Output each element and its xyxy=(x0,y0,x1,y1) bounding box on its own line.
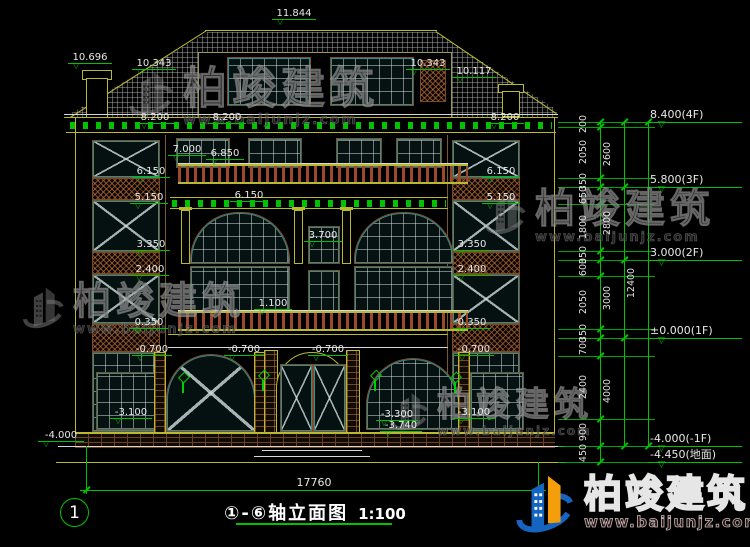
attic-window-left xyxy=(227,57,311,106)
column-2 xyxy=(294,210,303,264)
elevation-label: 3.350▽ xyxy=(132,239,170,251)
3f-cornice-top xyxy=(170,197,448,198)
basement-window-far-left xyxy=(96,372,156,430)
3f-dentil-band xyxy=(172,200,446,207)
entrance-step-1 xyxy=(262,450,362,451)
eave-line-bottom xyxy=(66,132,556,133)
3f-arched-window-right xyxy=(354,212,454,264)
wall-lamp-1 xyxy=(178,372,188,394)
chimney-left xyxy=(86,78,108,118)
dimension-value: 4000 xyxy=(603,369,613,413)
elevation-label: 6.150▽ xyxy=(482,166,520,178)
dim-extension-line xyxy=(558,260,655,261)
elevation-label: 10.343▽ xyxy=(406,58,450,70)
wall-edge-right xyxy=(554,117,555,446)
floor-elevation-flag: 3.000(2F)▽ xyxy=(650,247,742,261)
column-1 xyxy=(181,210,190,264)
elevation-label: 10.117▽ xyxy=(452,66,496,78)
dimension-chain-line xyxy=(648,122,649,446)
entrance-door-leaf-right xyxy=(313,364,346,432)
drawing-title: ①-⑥轴立面图 xyxy=(224,499,348,525)
elevation-label: -0.700▽ xyxy=(454,344,494,356)
elevation-label: 6.850▽ xyxy=(206,148,244,160)
elevation-label: 10.696▽ xyxy=(68,52,112,64)
dim-extension-line xyxy=(558,329,655,330)
dim-extension-line xyxy=(558,187,655,188)
wall-lamp-2 xyxy=(258,370,268,392)
elevation-label: -3.740▽ xyxy=(380,420,422,432)
dim-extension-line xyxy=(558,446,655,447)
brand-logo: 柏竣建筑 www.baijunjz.com xyxy=(516,468,750,538)
overall-dimension-line xyxy=(80,490,546,491)
attic-window-right xyxy=(330,57,414,106)
floor-elevation-flag: -4.450(地面)▽ xyxy=(650,449,742,463)
elevation-label: 10.343▽ xyxy=(132,58,176,70)
elevation-label: 3.700▽ xyxy=(304,230,342,242)
elevation-label: 2.400▽ xyxy=(453,264,491,276)
watermark-url: www.baijunjz.com xyxy=(535,230,715,245)
overall-width-dimension: 17760 xyxy=(264,476,364,489)
wall-lamp-3 xyxy=(370,370,380,392)
elevation-label: 11.844▽ xyxy=(272,8,316,20)
entrance-door-leaf-left xyxy=(280,364,313,432)
elevation-label: 5.150▽ xyxy=(130,192,168,204)
brand-logo-icon xyxy=(516,468,578,538)
brand-url: www.baijunjz.com xyxy=(584,513,750,531)
drawing-scale: 1:100 xyxy=(358,505,406,523)
elevation-label: 6.150▽ xyxy=(230,190,268,202)
dimension-value: 3000 xyxy=(603,276,613,320)
dim-extension-line xyxy=(558,356,655,357)
dim-extension-line xyxy=(558,419,655,420)
balcony-balustrade-upper xyxy=(178,163,468,184)
dimension-chain-line xyxy=(624,122,625,446)
elevation-label: 5.150▽ xyxy=(482,192,520,204)
entrance-pilaster-right xyxy=(346,350,360,434)
ground-line-outdoor xyxy=(56,462,566,463)
2f-center-window xyxy=(308,270,340,312)
elevation-label: -0.700▽ xyxy=(308,344,348,356)
entrance-step-2 xyxy=(254,456,370,457)
floor-elevation-flag: ±0.000(1F)▽ xyxy=(650,325,742,339)
elevation-label: 0.350▽ xyxy=(130,317,168,329)
dimension-value: 2400 xyxy=(579,365,589,409)
elevation-label: 8.200▽ xyxy=(208,112,246,124)
elevation-label: 6.150▽ xyxy=(132,166,170,178)
wall-lamp-4 xyxy=(450,372,460,394)
floor-elevation-flag: 8.400(4F)▽ xyxy=(650,109,742,123)
floor-elevation-flag: -4.000(-1F)▽ xyxy=(650,433,742,447)
dimension-value: 12400 xyxy=(627,261,637,305)
1f-trim-line-1 xyxy=(168,334,448,335)
dimension-value: 2600 xyxy=(603,132,613,176)
column-3 xyxy=(342,210,351,264)
elevation-label: -3.100▽ xyxy=(110,407,152,419)
pier-1 xyxy=(154,352,166,434)
ground-line-basement xyxy=(58,446,564,447)
elevation-label: 0.350▽ xyxy=(453,317,491,329)
2f-window-right xyxy=(354,266,454,312)
roof-ridge-line xyxy=(205,30,437,31)
dimension-chain-line xyxy=(600,122,601,462)
dim-extension-line xyxy=(558,251,655,252)
3f-arched-window-left xyxy=(190,212,290,264)
elevation-label: 7.000▽ xyxy=(168,144,206,156)
watermark-text: 柏竣建筑 xyxy=(535,188,715,230)
elevation-label: -0.700▽ xyxy=(132,344,172,356)
watermark-logo-icon xyxy=(22,282,68,332)
elevation-label: 8.200▽ xyxy=(136,112,174,124)
dim-extension-line xyxy=(558,122,655,123)
basement-window-far-right xyxy=(470,372,524,430)
elevation-label: 3.350▽ xyxy=(453,239,491,251)
elevation-label: 8.200▽ xyxy=(486,112,524,124)
elevation-label: -4.000▽ xyxy=(38,430,84,442)
floor-elevation-flag: 5.800(3F)▽ xyxy=(650,174,742,188)
grid-bubble-1: 1 xyxy=(60,498,89,527)
dim-extension-line xyxy=(558,127,655,128)
balcony-balustrade-lower xyxy=(178,310,468,331)
3f-cornice-bottom xyxy=(170,208,448,209)
dim-extension-line xyxy=(558,338,655,339)
elevation-label: 1.100▽ xyxy=(254,298,292,310)
dimension-value: 2800 xyxy=(603,201,613,245)
elevation-label: 2.400▽ xyxy=(131,264,169,276)
brand-name: 柏竣建筑 xyxy=(584,475,750,513)
cad-elevation-drawing: 17760 1 ①-⑥轴立面图 1:100 柏竣建筑 www.baijunjz.… xyxy=(0,0,750,547)
elevation-label: -3.100▽ xyxy=(453,407,495,419)
wall-edge-left xyxy=(75,117,76,446)
elevation-label: -0.700▽ xyxy=(224,344,264,356)
drawing-title-block: ①-⑥轴立面图 1:100 xyxy=(150,499,480,525)
grid-bubble-label: 1 xyxy=(69,503,80,523)
dimension-value: 700 xyxy=(579,324,589,368)
dim-extension-line xyxy=(558,462,655,463)
dim-extension-line xyxy=(558,178,655,179)
